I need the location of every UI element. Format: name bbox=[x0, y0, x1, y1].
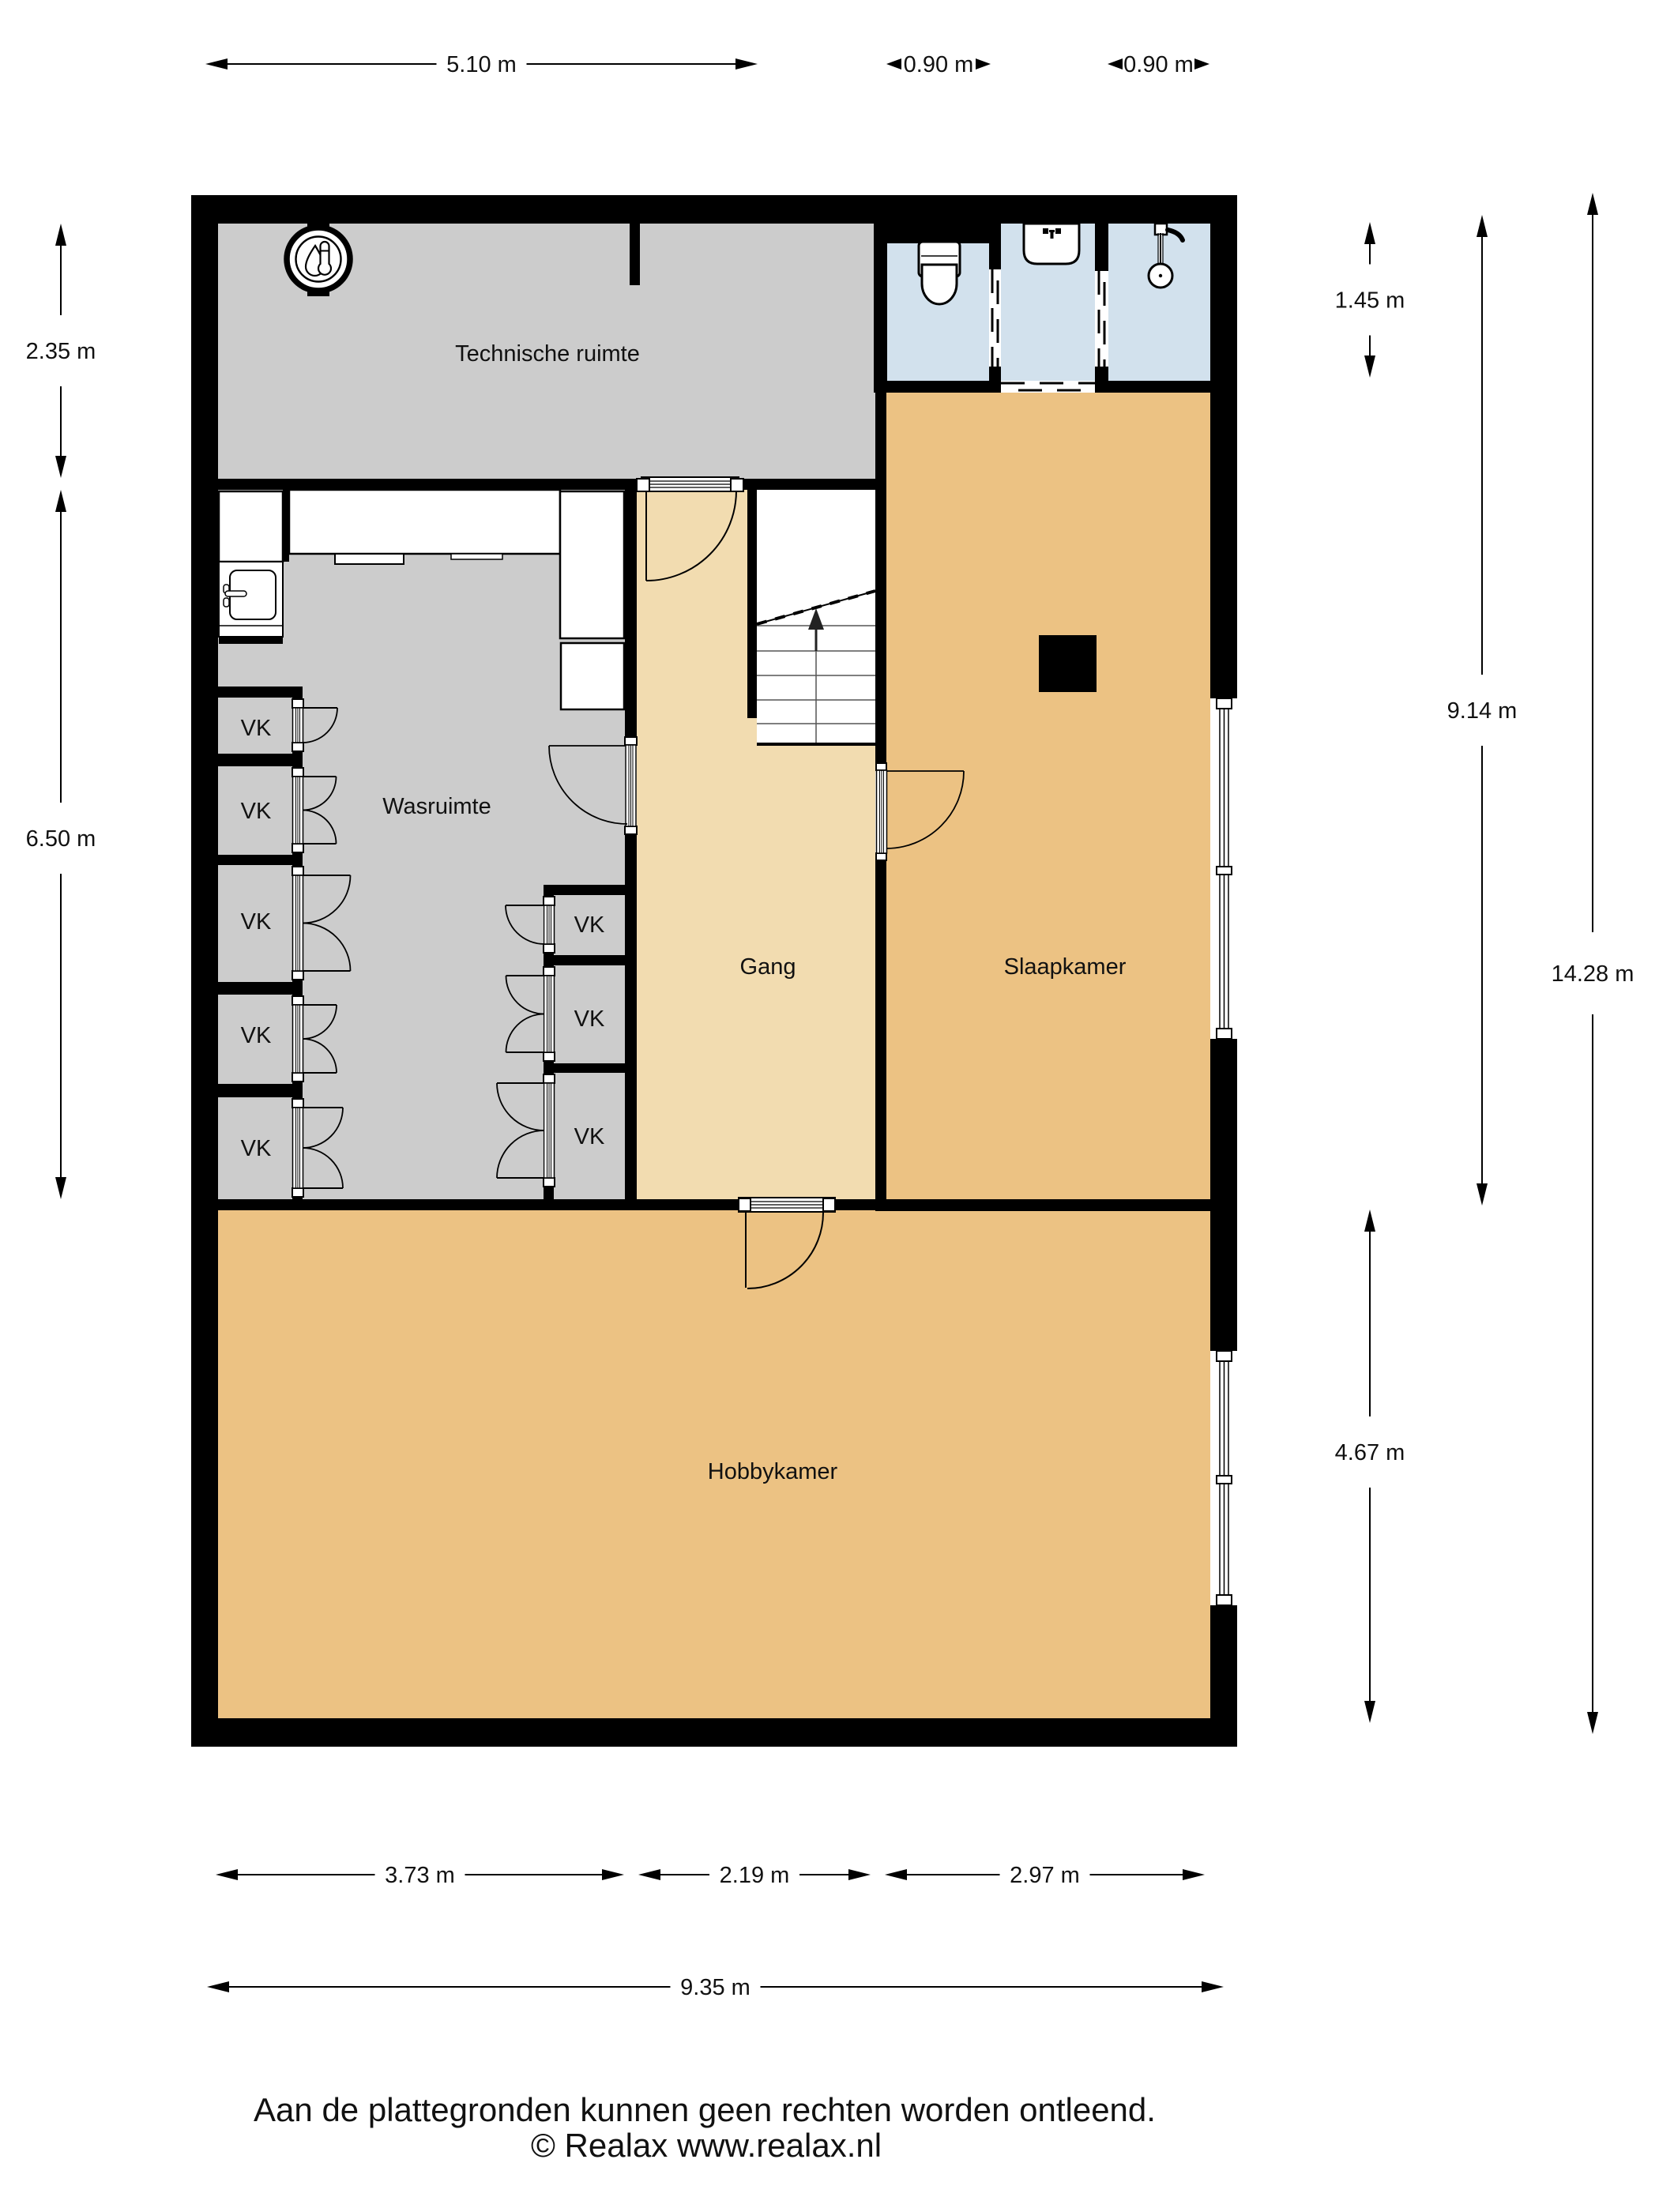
svg-text:2.97 m: 2.97 m bbox=[1010, 1863, 1080, 1888]
svg-text:Wasruimte: Wasruimte bbox=[382, 794, 491, 819]
svg-text:© Realax www.realax.nl: © Realax www.realax.nl bbox=[531, 2127, 882, 2164]
svg-text:1.45 m: 1.45 m bbox=[1335, 288, 1405, 314]
svg-text:4.67 m: 4.67 m bbox=[1335, 1440, 1405, 1465]
svg-text:5.10 m: 5.10 m bbox=[446, 52, 517, 77]
svg-text:6.50 m: 6.50 m bbox=[26, 826, 96, 852]
svg-text:3.73 m: 3.73 m bbox=[385, 1863, 455, 1888]
svg-text:VK: VK bbox=[574, 912, 605, 938]
svg-text:Aan de plattegronden kunnen ge: Aan de plattegronden kunnen geen rechten… bbox=[254, 2091, 1156, 2128]
svg-text:VK: VK bbox=[241, 1023, 272, 1048]
svg-text:14.28 m: 14.28 m bbox=[1552, 961, 1635, 987]
svg-text:VK: VK bbox=[241, 799, 272, 824]
svg-text:VK: VK bbox=[574, 1124, 605, 1149]
svg-text:Gang: Gang bbox=[740, 954, 796, 980]
svg-text:Technische ruimte: Technische ruimte bbox=[455, 341, 640, 367]
svg-text:VK: VK bbox=[241, 909, 272, 935]
svg-text:9.35 m: 9.35 m bbox=[680, 1975, 750, 2000]
svg-text:2.19 m: 2.19 m bbox=[720, 1863, 790, 1888]
svg-text:Hobbykamer: Hobbykamer bbox=[708, 1459, 838, 1484]
svg-text:VK: VK bbox=[574, 1006, 605, 1032]
svg-text:0.90 m: 0.90 m bbox=[1123, 52, 1194, 77]
svg-text:Slaapkamer: Slaapkamer bbox=[1004, 954, 1127, 980]
svg-text:0.90 m: 0.90 m bbox=[904, 52, 974, 77]
svg-text:VK: VK bbox=[241, 716, 272, 741]
svg-text:VK: VK bbox=[241, 1136, 272, 1161]
svg-text:9.14 m: 9.14 m bbox=[1447, 698, 1518, 724]
svg-text:2.35 m: 2.35 m bbox=[26, 339, 96, 364]
